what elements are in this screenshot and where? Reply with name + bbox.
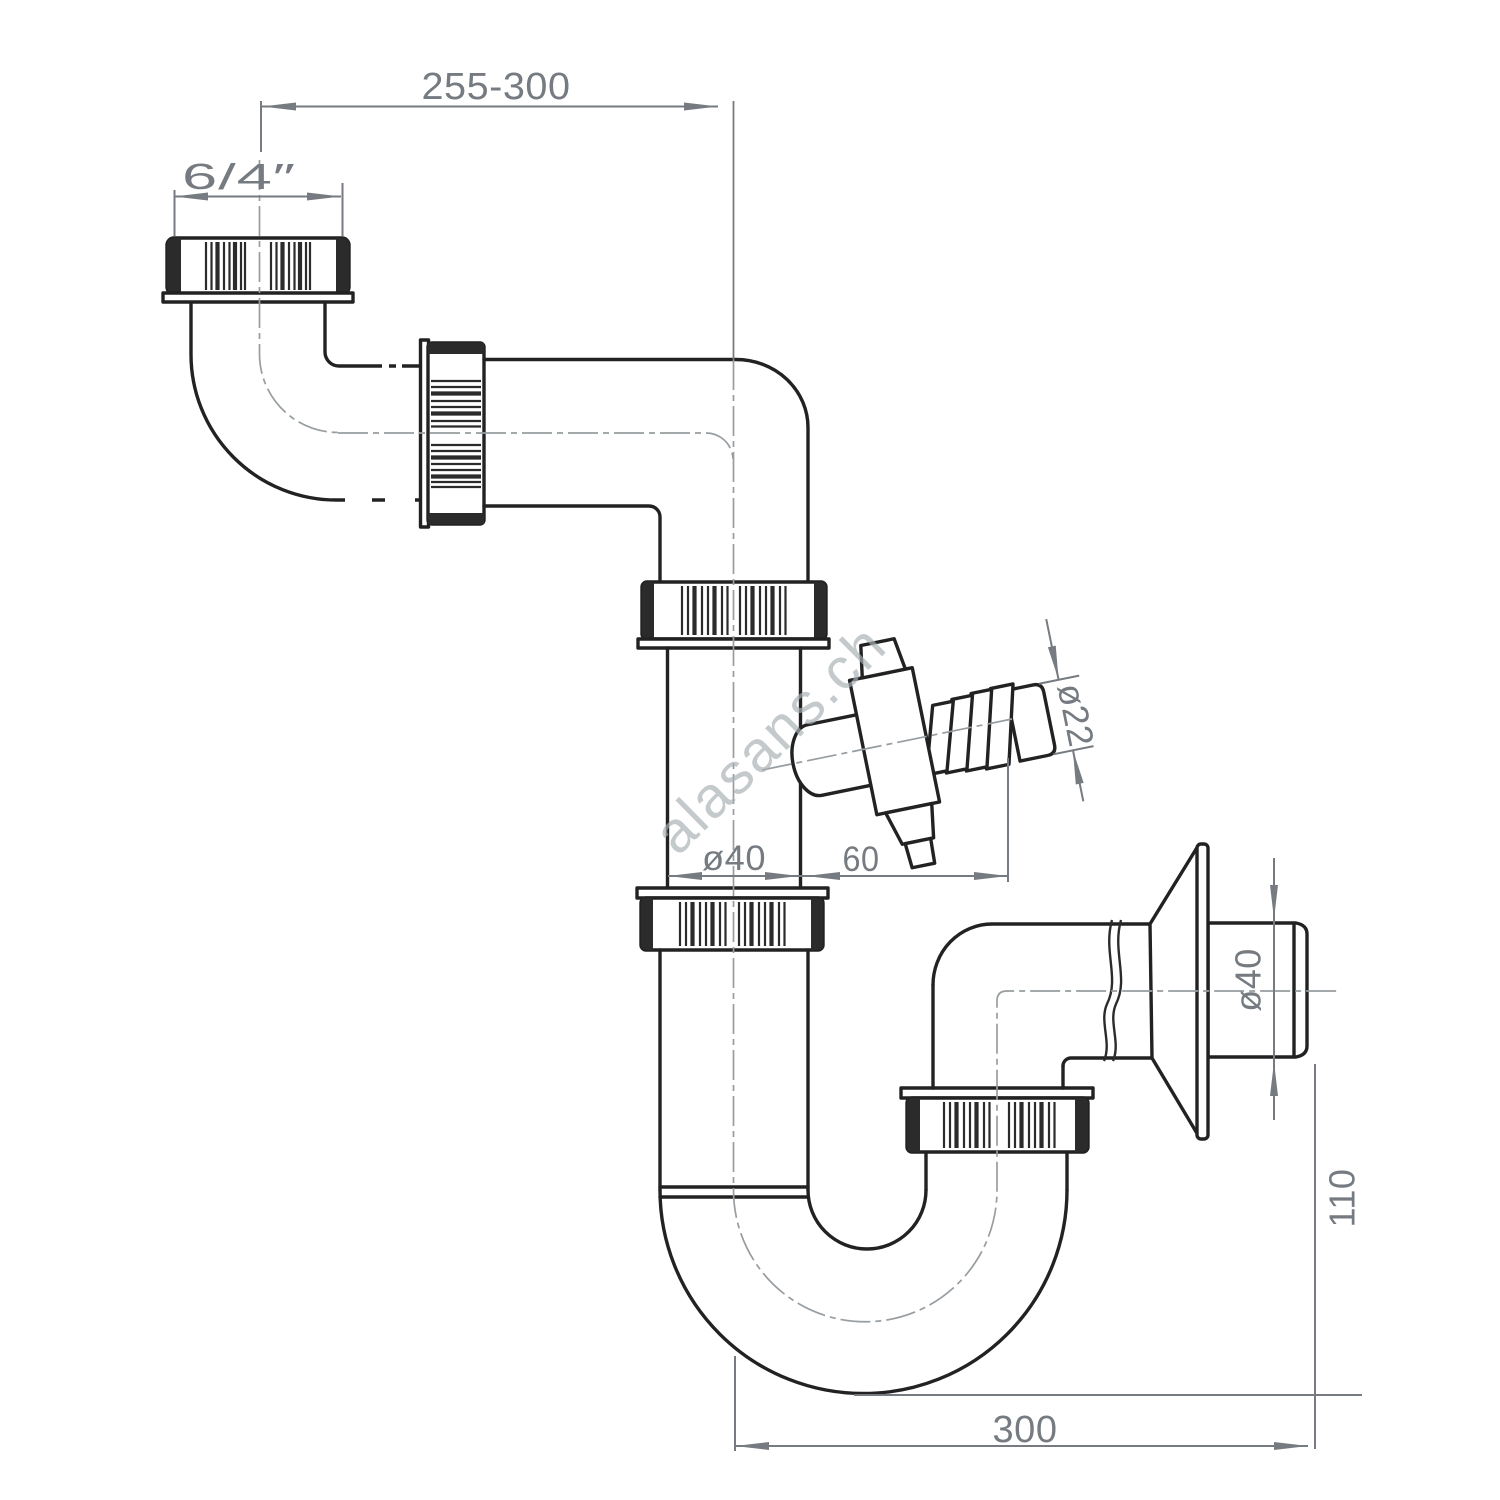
svg-text:6/4″: 6/4″ bbox=[182, 156, 296, 197]
svg-text:255-300: 255-300 bbox=[422, 66, 571, 108]
svg-text:300: 300 bbox=[993, 1409, 1058, 1451]
svg-text:110: 110 bbox=[1322, 1169, 1363, 1228]
svg-text:60: 60 bbox=[843, 840, 880, 879]
svg-text:ø40: ø40 bbox=[1228, 948, 1269, 1012]
svg-text:ø40: ø40 bbox=[702, 839, 766, 878]
